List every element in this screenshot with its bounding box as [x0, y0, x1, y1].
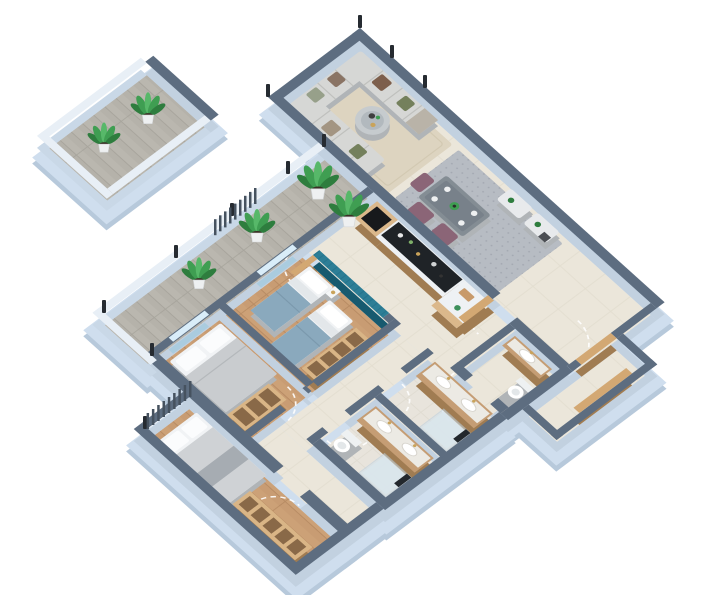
- floor-plan-render: [0, 0, 725, 595]
- column-post: [423, 75, 427, 88]
- column-post: [102, 300, 106, 313]
- column-post: [390, 45, 394, 58]
- column-post: [358, 15, 362, 28]
- column-post: [150, 343, 154, 356]
- column-post: [286, 161, 290, 174]
- column-post: [174, 245, 178, 258]
- floor-plan-stage: [0, 0, 725, 595]
- column-post: [266, 84, 270, 97]
- column-post: [322, 134, 326, 147]
- column-post: [143, 416, 147, 429]
